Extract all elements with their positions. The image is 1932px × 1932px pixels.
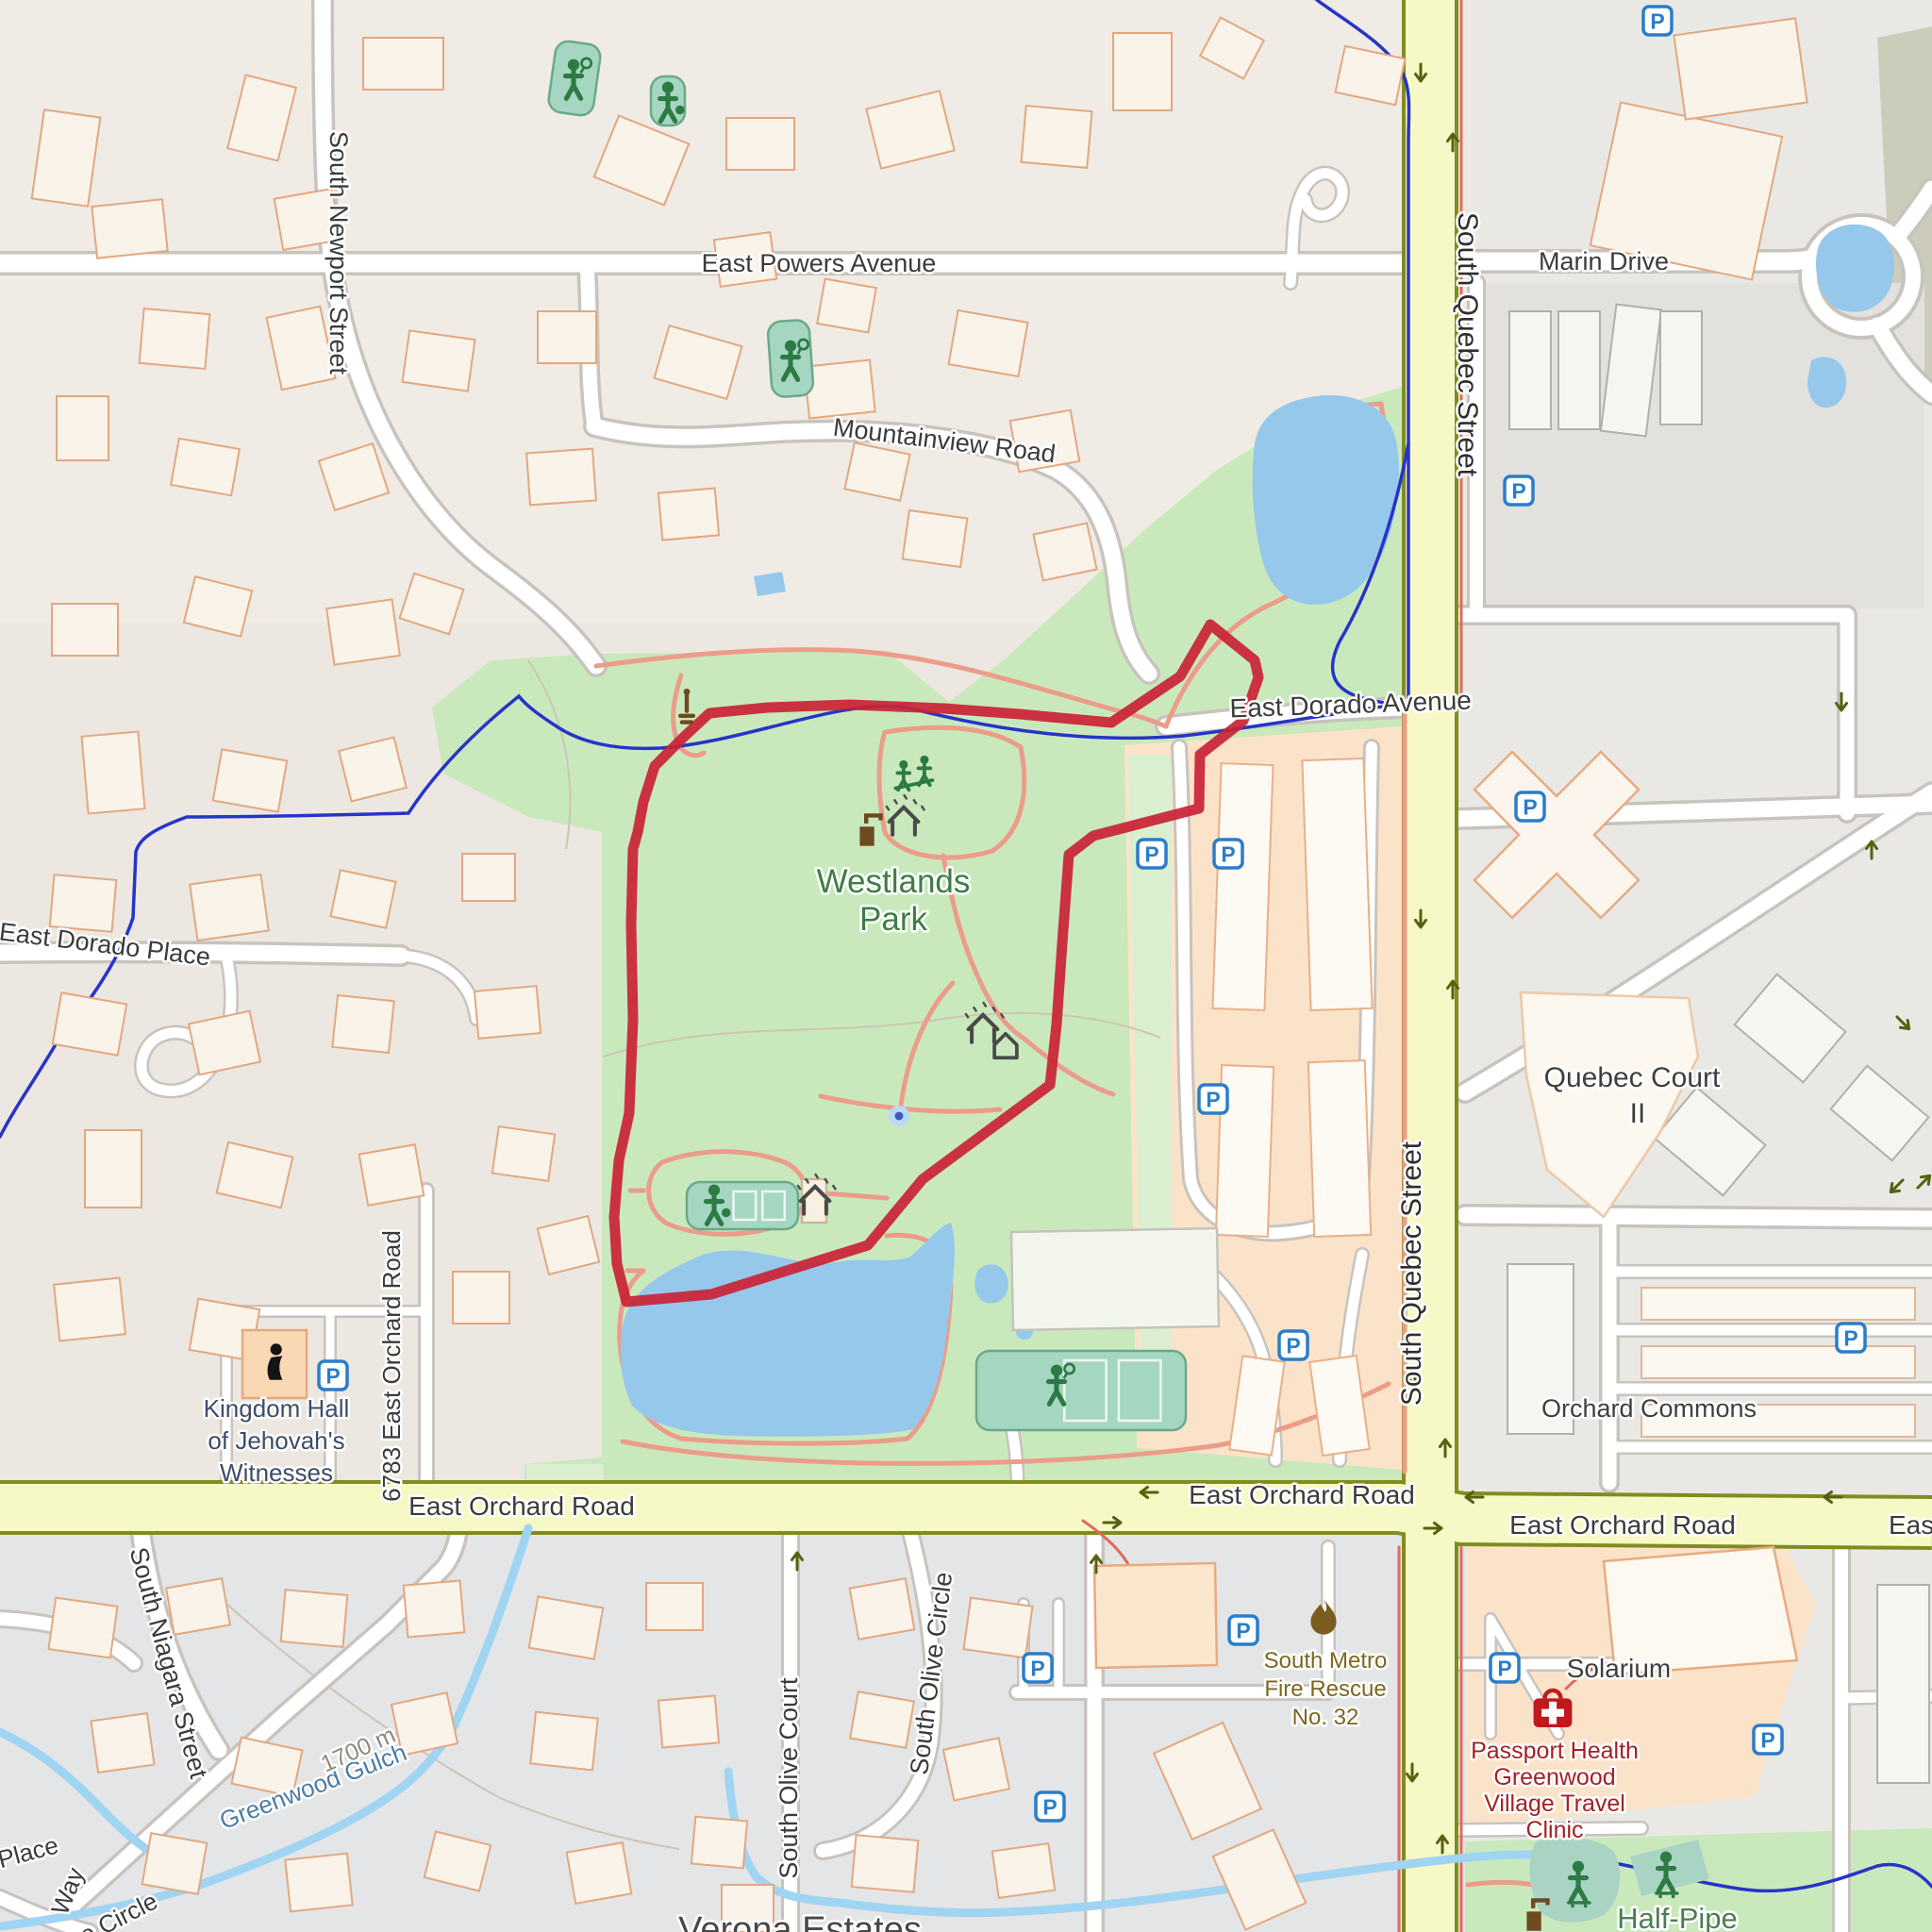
park-basketball-court [687,1182,798,1229]
svg-text:P: P [1497,1657,1511,1681]
label-south-quebec-street-upper: South Quebec Street [1452,212,1483,477]
apartment-building [1302,758,1372,1010]
house-building [530,1712,597,1771]
house-building [359,1144,425,1206]
house-building [166,1578,230,1635]
row-building [1641,1288,1915,1320]
label-orchard-commons: Orchard Commons [1541,1394,1757,1423]
label-kingdom-hall-line3: Witnesses [220,1458,333,1487]
house-building [526,449,596,506]
house-building [1674,18,1807,119]
house-building [949,310,1028,376]
label-half-pipe: Half-Pipe [1617,1902,1738,1932]
house-building [1113,33,1172,110]
house-building [475,986,541,1039]
parking-icon: P [1024,1654,1052,1682]
parking-icon: P [1516,792,1544,821]
svg-text:P: P [325,1364,340,1389]
house-building [50,874,117,932]
label-south-olive-court: South Olive Court [774,1677,803,1879]
label-fire-rescue-line2: Fire Rescue [1264,1676,1386,1702]
svg-text:P: P [1042,1795,1057,1820]
parking-icon: P [1036,1792,1064,1821]
fountain-icon [889,1106,909,1126]
recreation-center-building [1011,1228,1219,1330]
label-east-powers-avenue: East Powers Avenue [702,249,937,277]
parking-icon: P [1229,1616,1257,1644]
house-building [82,732,145,814]
row-building [1641,1346,1915,1378]
label-east-orchard-road-center: East Orchard Road [1189,1480,1415,1509]
house-building [538,311,596,363]
label-marin-drive: Marin Drive [1539,247,1669,275]
svg-text:P: P [1843,1326,1857,1351]
label-passport-line4: Clinic [1525,1817,1583,1843]
svg-text:P: P [1286,1334,1300,1358]
house-building [658,488,719,540]
parking-icon: P [1643,7,1672,35]
parking-icon: P [1837,1324,1865,1352]
house-building [142,1833,208,1894]
label-solarium: Solarium [1567,1654,1671,1683]
house-building [92,199,167,258]
parking-icon: P [1199,1085,1227,1113]
house-building [190,874,269,941]
svg-text:P: P [1221,842,1235,867]
label-kingdom-hall-line2: of Jehovah's [208,1426,344,1455]
label-westlands-park-line2: Park [859,901,927,938]
pool-pond [974,1264,1008,1303]
house-building [804,359,874,418]
house-building [691,1817,747,1869]
house-building [140,308,210,369]
house-building [492,1126,555,1181]
label-south-quebec-street-lower: South Quebec Street [1396,1141,1427,1406]
label-quebec-court-line1: Quebec Court [1544,1062,1721,1093]
label-kingdom-hall-line1: Kingdom Hall [204,1394,350,1423]
house-building [1022,106,1092,168]
svg-text:P: P [1206,1088,1220,1112]
commercial-building [1660,311,1702,425]
label-fire-rescue-line3: No. 32 [1292,1705,1359,1730]
house-building [57,396,108,460]
house-building [646,1583,703,1630]
svg-text:P: P [1511,479,1525,504]
house-building [52,604,118,656]
house-building [817,279,875,333]
parking-icon: P [1279,1331,1307,1359]
parking-icon: P [1214,840,1242,868]
house-building [285,1854,352,1912]
map-canvas[interactable]: PPPPPPPPPPPPPPEast Powers AvenueSouth Ne… [0,0,1932,1932]
parking-icon: P [1754,1725,1782,1754]
commercial-building [1558,311,1600,429]
label-east-orchard-road-east: East Orchard Road [1509,1510,1736,1540]
svg-text:P: P [1650,9,1664,34]
house-building [213,749,287,811]
house-building [852,1835,919,1892]
house-building [453,1272,509,1324]
house-building [850,1578,915,1640]
fire-station-building [1094,1563,1217,1668]
house-building [171,439,240,496]
parking-icon: P [1505,476,1533,505]
house-building [943,1738,1009,1800]
house-building [403,330,475,391]
label-passport-line3: Village Travel [1484,1790,1625,1817]
house-building [462,854,515,901]
house-building [363,38,443,90]
house-building [903,510,968,567]
house-building [529,1596,603,1658]
house-building [326,599,400,664]
label-east-orchard-road-far: East [1889,1510,1932,1540]
house-building [332,995,393,1053]
house-building [85,1130,142,1207]
house-building [1033,524,1096,581]
house-building [404,1580,465,1637]
label-south-newport-street: South Newport Street [325,131,353,375]
svg-text:P: P [1030,1657,1044,1681]
label-passport-line2: Greenwood [1493,1764,1615,1790]
svg-text:P: P [1760,1728,1774,1753]
label-east-orchard-road-west: East Orchard Road [408,1491,635,1521]
orchard-commons-road [1465,1215,1932,1219]
house-building [658,1695,719,1747]
label-fire-rescue-line1: South Metro [1264,1648,1388,1674]
label-verona-estates: Verona Estates [678,1910,922,1932]
label-westlands-park-line1: Westlands [817,863,971,900]
commercial-building [1509,311,1551,429]
small-pond [1807,357,1846,408]
house-building [567,1842,632,1904]
commercial-building [1877,1585,1929,1783]
parking-icon: P [1491,1654,1519,1682]
house-building [992,1843,1055,1898]
house-building [32,109,101,206]
label-address-6783-east-orchard-road: 6783 East Orchard Road [377,1230,406,1502]
svg-text:P: P [1236,1619,1250,1643]
parking-icon: P [319,1361,347,1390]
house-building [54,1278,125,1341]
house-building [726,118,794,170]
house-building [48,1598,117,1658]
svg-text:P: P [1523,795,1537,820]
apartment-building [1308,1060,1371,1237]
svg-text:P: P [1144,842,1158,867]
house-building [850,1691,914,1748]
house-building [281,1590,348,1647]
roundabout-pond [1816,225,1894,312]
house-building [91,1713,154,1773]
label-quebec-court-line2: II [1630,1098,1646,1129]
house-building [53,992,126,1055]
label-passport-line1: Passport Health [1471,1738,1639,1764]
house-building [963,1598,1032,1658]
pool-sports-court [976,1351,1186,1430]
apartment-building [1212,763,1273,1010]
parking-icon: P [1138,840,1166,868]
